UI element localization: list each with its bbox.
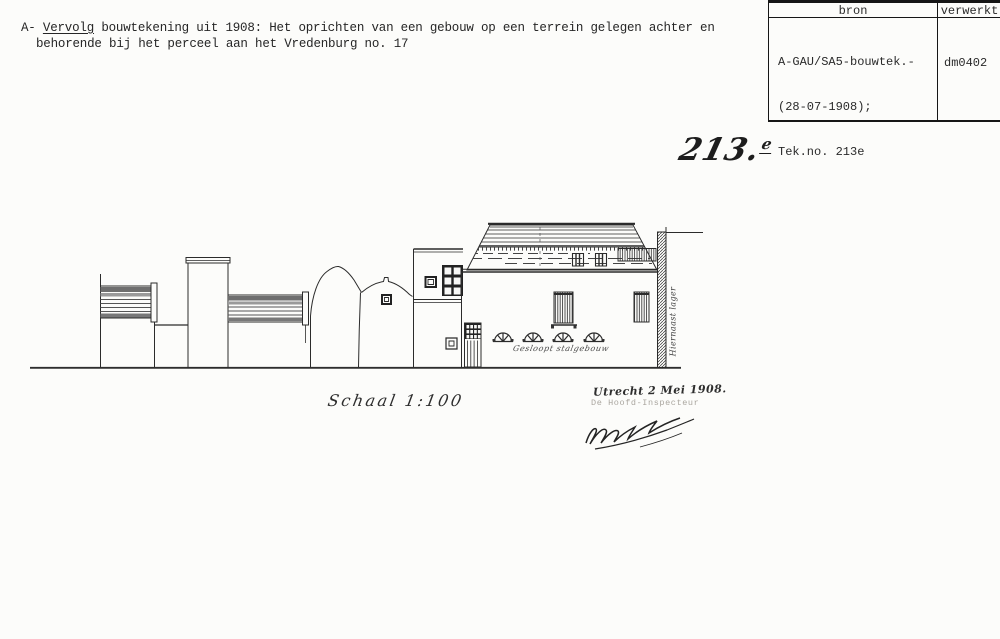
bron-line: A-GAU/SA5-bouwtek.- [778,55,915,70]
bron-line: (28-07-1908); [778,100,915,115]
signature-flourish [586,418,694,449]
bron-line: Tek.no. 213e [778,145,915,160]
column-header-verwerkt: verwerkt [938,4,1000,17]
boundary-annotation: Hiernaast lager [669,279,680,365]
note-line1-rest: bouwtekening uit 1908: Het oprichten van… [94,21,715,35]
small-wall-opening [446,338,457,349]
gable-house-1 [311,266,362,367]
bron-cell: A-GAU/SA5-bouwtek.- (28-07-1908); Tek.no… [778,25,915,190]
gable-window [382,295,391,304]
main-building-roof [465,224,659,270]
roof-vent [596,254,607,267]
roof-vent [573,254,584,267]
annex-grid-window [442,265,463,296]
note-underlined-word: Vervolg [43,21,94,35]
note-item-letter: A- [21,21,43,35]
column-header-bron: bron [769,4,937,17]
fence-band [228,292,309,343]
scanned-document-page: A- Vervolg bouwtekening uit 1908: Het op… [0,0,1000,639]
table-column-divider [937,3,938,120]
chimney-tower [186,258,230,368]
boundary-wall-section [658,227,704,368]
header-note: A- Vervolg bouwtekening uit 1908: Het op… [21,20,715,52]
reference-table: bron verwerkt A-GAU/SA5-bouwtek.- (28-07… [768,0,1000,122]
left-shed [101,274,158,368]
louvred-window-right [634,292,649,322]
facade-annotation: Gesloopt stalgebouw [512,344,610,353]
signer-label: De Hoofd-Inspecteur [591,398,699,408]
note-line-2: behorende bij het perceel aan het Vreden… [21,36,715,52]
verwerkt-cell: dm0402 [944,56,987,70]
gable-house-2 [362,278,413,305]
scale-label: Schaal 1:100 [326,391,465,410]
roof-hatched-section [618,249,656,262]
drawing-number-main: 213. [676,132,764,168]
annex-small-window [426,277,437,287]
entrance-door [465,323,482,367]
arched-vents [493,333,605,342]
drawing-number: 213.e [676,132,777,168]
note-line-1: A- Vervolg bouwtekening uit 1908: Het op… [21,20,715,36]
annex-building [414,249,464,368]
louvred-window-left [551,292,577,329]
